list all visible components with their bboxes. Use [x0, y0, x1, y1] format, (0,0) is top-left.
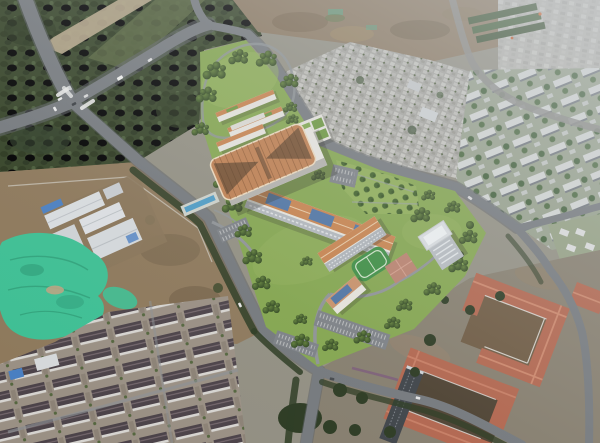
- aerial-photo-stage: [0, 0, 600, 443]
- aerial-photo: [0, 0, 600, 443]
- haze-overlay: [0, 0, 600, 443]
